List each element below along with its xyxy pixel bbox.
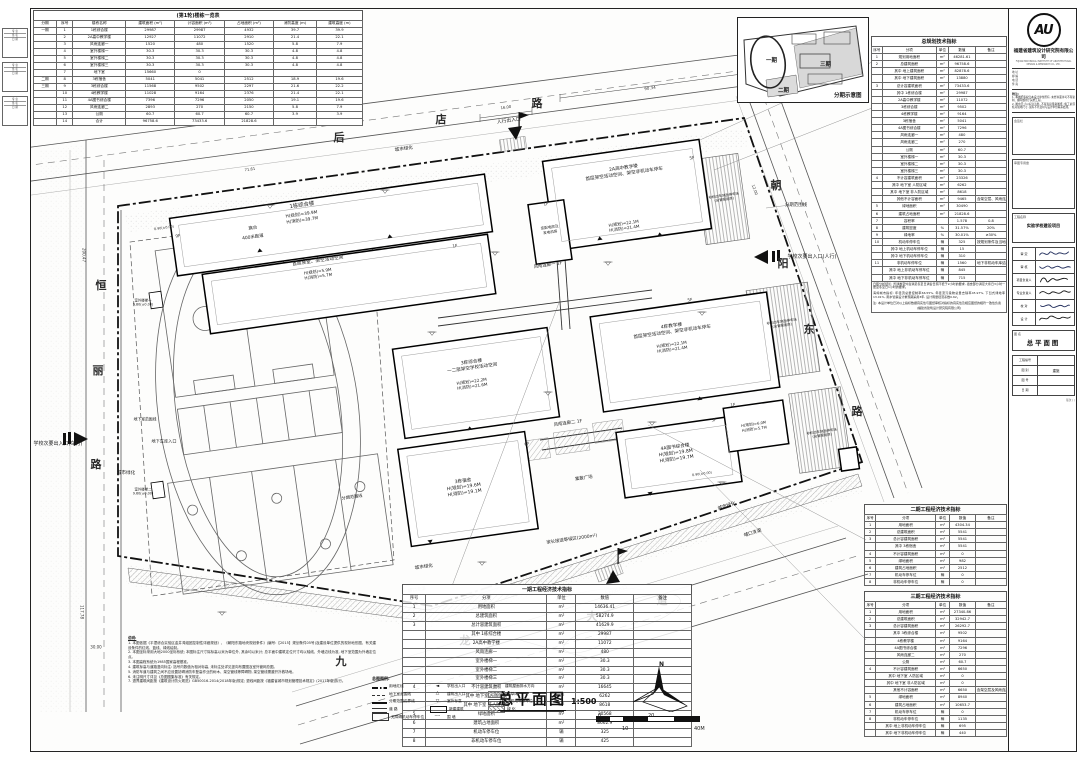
table-row: 14合计96758.673433.621828.6: [34, 118, 363, 125]
legend-item: △建筑出入口: [430, 691, 484, 699]
table-row: 4不计容建筑面积m²23326: [872, 174, 1007, 181]
table-header-row: 序号分项单位数值备注: [865, 515, 1007, 522]
building-4: [590, 292, 780, 412]
sign-label: 校 对: [1013, 300, 1036, 312]
legend-item-label: 用地红线: [389, 684, 404, 689]
legend-symbol-icon: ▽: [430, 699, 445, 705]
table-row: 2总建筑面积m²58274.9: [403, 612, 692, 621]
legend-column: 用地红线地下室范围线分期范围边界线道 路无障碍机动车停车位: [372, 683, 426, 721]
figure-name-label: 图 名: [1014, 332, 1073, 336]
company-name-en: FUJIAN PROVINCIAL INSTITUTE OF ARCHITECT…: [1012, 61, 1075, 69]
legend-symbol-icon: [372, 687, 387, 689]
table-row: 其中 地下室 人防区域m²0: [865, 673, 1007, 680]
signature-handwriting: [1036, 248, 1074, 259]
table-row: 4栋教学楼m²9164: [872, 110, 1007, 117]
text-line: 传 真: [1012, 83, 1075, 87]
review-stamp-box: 审图专用章: [1012, 159, 1075, 209]
table-row: 其中 地下室 非人防区域m²8618: [872, 189, 1007, 196]
text-line: 1. 本图纸版权归本设计单位所有, 未经书面许可不得复制、翻印或用于其他工程。: [1012, 96, 1075, 103]
table-row: 104栋教学楼110289164237621.422.1: [34, 90, 363, 97]
figure-name-box: 图 名 总平面图: [1012, 330, 1075, 351]
table-row: 10机动车停车位辆325按规划条件及当地标准配建: [872, 238, 1007, 245]
table-row: 一期11栋综合楼2998729987493239.739.9: [34, 27, 363, 34]
binding-strip: 专 业签 名日 期 专 业签 名日 期 专 业签 名日 期: [0, 0, 30, 760]
company-address: 地 址邮 编电 话传 真: [1012, 71, 1075, 90]
table-row: 7机动车停车位辆325: [403, 729, 692, 738]
table-row: 2总建筑面积m²32942.7: [865, 616, 1007, 623]
data-table: 序号分项单位数值备注1规划用地面积m²46281.612总建筑面积m²96758…: [871, 46, 1007, 282]
table-title: 总规划技术指标: [871, 36, 1007, 46]
table-row: 室外楼梯三m²30.3: [872, 167, 1007, 174]
sign-label: 专业负责人: [1013, 287, 1036, 299]
signature-handwriting: [1036, 274, 1074, 285]
building-3: [392, 328, 559, 439]
table-row: 其中 地下非机动车停车位辆440: [865, 729, 1007, 736]
legend-item: 无障碍机动车停车位: [372, 713, 426, 721]
title-block-divider: [1008, 8, 1009, 752]
table-row: 11非机动车停车位辆1560地下非机动车库结合地下室设置: [872, 260, 1007, 267]
company-logo: AU: [1027, 13, 1061, 47]
table-row: 8非机动车停车位辆425: [403, 738, 692, 747]
drawing-title-text: 总平面图: [498, 688, 566, 711]
legend-symbol-icon: ╌╌: [430, 714, 445, 720]
legend-item-label: 围 墙: [447, 715, 456, 720]
table-header-row: 分期序号楼栋名称建筑面积 (m²)计容面积 (m²)占地面积 (m²)消防高度 …: [34, 21, 363, 28]
table-row: 公厕m²60.7: [865, 658, 1007, 665]
table-row: 4不计容建筑面积m²6650: [865, 665, 1007, 672]
table-row: 其中 1栋综合楼m²29987: [403, 630, 692, 639]
building-4a: [616, 416, 742, 498]
scale-10: 10: [622, 726, 628, 733]
inset-phase3-label: 三期: [820, 62, 831, 69]
north-arrow: N: [626, 656, 692, 716]
table-row: 2总建筑面积m²96758.6: [872, 61, 1007, 68]
table-row: 12风雨连廊二289327021505.87.9: [34, 104, 363, 111]
table-row: 其中 地下机动车停车位辆310: [872, 253, 1007, 260]
table-row: 公厕m²60.7: [872, 146, 1007, 153]
project-name-label: 工程名称: [1014, 215, 1073, 219]
legend-title: 总图图例:: [372, 676, 542, 682]
signature-handwriting: [1036, 287, 1074, 298]
table-row: 其中 地下室 非人防区域m²0: [865, 680, 1007, 687]
legend-symbol-icon: [430, 706, 447, 713]
text-line: 2. 图中尺寸以标注为准, 不得直接量取图纸; 施工前须核对现场尺寸, 如有不符…: [1012, 103, 1075, 110]
signoff-grid: 专 业签 名日 期: [2, 62, 28, 92]
building-wc: [723, 400, 789, 452]
table-row: 三期93栋综合楼115689502229721.622.2: [34, 83, 363, 90]
inset-phase2-label: 二期: [778, 88, 789, 95]
sign-label: 审 定: [1013, 248, 1036, 260]
text-line: 2. 本图坐标采用大地2000坐标系统; 本图标注尺寸除标高以米为单位外, 其余…: [128, 650, 376, 660]
legend-item: 用地红线: [372, 683, 426, 691]
table-row: 其中 地下室 人防区域m²6262: [872, 182, 1007, 189]
sheet-field-label: 工程编号: [1013, 356, 1038, 365]
table-title: 一期工程经济技术指标: [402, 584, 692, 594]
legend-item: 分期范围边界线: [372, 698, 426, 706]
table-row: 8非机动车停车位辆1135: [865, 715, 1007, 722]
table-row: 5绿地面积m²8940: [865, 694, 1007, 701]
table-row: 6室外楼梯三30.330.330.34.84.8: [34, 62, 363, 69]
table-row: 其中 地上非机动车停车位辆845: [872, 267, 1007, 274]
scale-20: 20: [648, 713, 654, 720]
table-row: 3总计容建筑面积m²73433.6: [872, 82, 1007, 89]
project-name-value: 实验学校建设项目: [1014, 223, 1073, 229]
table-footnote: (福建省建筑设计研究院有限公司): [871, 306, 1007, 313]
figure-name-value: 总平面图: [1014, 338, 1073, 347]
drawing-sheet: { "tl_table":{ "title":"(第1轮)楼栋一览表", "he…: [0, 0, 1080, 760]
sheet-field-label: 图 别: [1013, 366, 1038, 375]
sheet-field-label: 图 号: [1013, 376, 1038, 385]
inset-caption: 分期示意图: [834, 93, 862, 100]
table-row: 1用地面积m²27340.86: [865, 609, 1007, 616]
table-row: 6建筑占地面积m²21828.6: [872, 210, 1007, 217]
legend-item: ▽室外标高: [430, 698, 484, 706]
signature-rows: 审 定 审 核 项目负责人 专业负责人 校 对 设 计: [1012, 247, 1075, 326]
table-row: 其他不计容面积m²9465含架空层、风雨连廊等: [872, 196, 1007, 203]
table-row: 3风雨连廊一152048015205.87.9: [34, 41, 363, 48]
signature-handwriting: [1036, 313, 1074, 324]
table-row: 1规划用地面积m²46281.61: [872, 54, 1007, 61]
table-row: 1用地面积m²14636.41: [403, 603, 692, 612]
project-name-box: 工程名称 实验学校建设项目: [1012, 213, 1075, 243]
table-row: 13公厕60.760.760.73.93.9: [34, 111, 363, 118]
table-footnote: 日照分析结论: 普通教室外窗满足冬至日满窗日照不低于2小时的要求, 宿舍部分满足…: [871, 282, 1007, 292]
table-footnote: 海绵城市指标: 年径流总量控制率66.55%, 年径流污染物总量去除率45.97…: [871, 291, 1007, 301]
table-row: 3总计容建筑面积m²5541: [865, 536, 1007, 543]
table-row: 5绿地面积m²982: [865, 557, 1007, 564]
table-row: 风雨连廊二m²270: [872, 139, 1007, 146]
table-row: 8非机动车停车位辆0: [865, 578, 1007, 585]
scale-0: 0: [598, 713, 601, 720]
legend-symbol-icon: [372, 713, 389, 720]
data-table: 分期序号楼栋名称建筑面积 (m²)计容面积 (m²)占地面积 (m²)消防高度 …: [33, 20, 363, 126]
table-title: 二期工程经济技术指标: [864, 504, 1007, 514]
table-row: 风雨连廊一m²480: [872, 132, 1007, 139]
green-strip-west: [40, 144, 84, 712]
table-row: 其中 地下建筑面积m²13880: [872, 75, 1007, 82]
legend-item-label: 无障碍机动车停车位: [391, 715, 424, 720]
table-row: 7机动车停车位辆0: [865, 571, 1007, 578]
table-row: 7地下室156600: [34, 69, 363, 76]
table-row: 室外楼梯一m²30.3: [872, 153, 1007, 160]
phasing-inset-drawing: [738, 18, 866, 100]
sign-label: 设 计: [1013, 313, 1036, 325]
legend-symbol-icon: [372, 695, 387, 696]
signoff-grid: 专 业签 名日 期: [2, 28, 28, 58]
table-row: 其中 地上建筑面积m²82878.6: [872, 68, 1007, 75]
table-header-row: 序号分项单位数值备注: [403, 595, 692, 604]
table-row: 7容积率1.5780.8: [872, 217, 1007, 224]
company-name: 福建省建筑设计研究院有限公司: [1012, 49, 1075, 60]
legend-symbol-icon: △: [430, 691, 445, 697]
building-equip: [528, 200, 572, 264]
sign-label: 项目负责人: [1013, 274, 1036, 286]
sheet-info-rows: 工程编号 图 别建施 图 号 日 期: [1012, 355, 1075, 396]
legend-item: 新建建筑: [430, 706, 484, 714]
table-row: 114A图书综合楼73967296205019.119.6: [34, 97, 363, 104]
legend-item-label: 室外标高: [447, 699, 462, 704]
table-header-row: 序号分项单位数值备注: [872, 47, 1007, 54]
legend-column: ◄学校出入口△建筑出入口▽室外标高新建建筑╌╌围 墙: [430, 683, 484, 721]
legend-item-label: 学校出入口: [447, 684, 465, 689]
table-row: 其中 地上非机动车停车位辆695: [865, 722, 1007, 729]
table-row: 3总计容建筑面积m²41629.9: [403, 621, 692, 630]
building-list-table: (第1轮)楼栋一览表分期序号楼栋名称建筑面积 (m²)计容面积 (m²)占地面积…: [33, 10, 363, 126]
table-row: 2A高中教学楼m²11072: [403, 639, 692, 648]
scale-40: 40M: [694, 726, 705, 733]
table-row: 其他不计容面积m²6650含架空层及风雨连廊、4A屋顶构架: [865, 687, 1007, 694]
table-row: 其中 3栋宿舍m²5541: [865, 543, 1007, 550]
table-row: 4不计容建筑面积m²0: [865, 550, 1007, 557]
table-row: 7机动车停车位辆0: [865, 708, 1007, 715]
drawing-title: 总平面图 1:500: [498, 688, 596, 711]
overall-indicators-table: 总规划技术指标序号分项单位数值备注1规划用地面积m²46281.612总建筑面积…: [871, 36, 1007, 313]
outdoor-stair-2: [151, 481, 165, 499]
sheet-version: 版次 ( ): [1012, 398, 1075, 402]
table-row: 风雨连廊二m²270: [865, 651, 1007, 658]
table-row: 3栋宿舍m²5041: [872, 118, 1007, 125]
table-row: 9绿地率%30.01%≥30%: [872, 231, 1007, 238]
legend-item: ╌╌围 墙: [430, 713, 484, 721]
table-row: 其中 地上机动车停车位辆15: [872, 246, 1007, 253]
scale-bar: 0 20 10 40M: [596, 710, 700, 728]
gatehouse: [839, 447, 860, 471]
table-row: 5室外楼梯二30.330.330.34.84.8: [34, 55, 363, 62]
legend-item-label: 地下室范围线: [389, 692, 411, 697]
data-table: 序号分项单位数值备注1用地面积m²27340.862总建筑面积m²32942.7…: [864, 601, 1007, 737]
sheet-field-label: 日 期: [1013, 386, 1038, 395]
table-row: 4A图书综合楼m²7296: [872, 125, 1007, 132]
table-title: 三期工程经济技术指标: [864, 591, 1007, 601]
inset-phase1-label: 一期: [766, 58, 777, 65]
legend-item: 道 路: [372, 706, 426, 714]
data-table: 序号分项单位数值备注1用地面积m²4304.342总建筑面积m²55413总计容…: [864, 514, 1007, 586]
north-label: N: [659, 661, 664, 669]
legend-item-label: 新建建筑: [449, 707, 464, 712]
table-row: 其中 地下非机动车停车位辆715: [872, 274, 1007, 281]
legend-symbol-icon: [372, 708, 387, 713]
signature-handwriting: [1036, 300, 1074, 311]
legend-item: 地下室范围线: [372, 691, 426, 699]
table-row: 3栋综合楼m²9502: [872, 103, 1007, 110]
table-row: 6建筑占地面积m²10653.7: [865, 701, 1007, 708]
table-row: 5绿地面积m²30490: [872, 203, 1007, 210]
legend-item-label: 分期范围边界线: [389, 699, 415, 704]
legend-item-label: 建筑出入口: [447, 692, 465, 697]
table-row: 其中 1栋综合楼m²29987: [872, 89, 1007, 96]
table-row: 1用地面积m²4304.34: [865, 522, 1007, 529]
table-row: 3总计容建筑面积m²26292.7: [865, 623, 1007, 630]
table-row: 4栋教学楼m²9164: [865, 637, 1007, 644]
drawing-scale: 1:500: [571, 697, 596, 706]
table-row: 22A高中教学楼1292711072291021.422.1: [34, 34, 363, 41]
table-row: 2A高中教学楼m²11072: [872, 96, 1007, 103]
table-row: 其中 3栋综合楼m²9502: [865, 630, 1007, 637]
sheet-field-value: 建施: [1038, 368, 1074, 373]
phase2-indicators-table: 二期工程经济技术指标序号分项单位数值备注1用地面积m²4304.342总建筑面积…: [864, 504, 1007, 586]
table-row: 室外楼梯二m²30.3: [872, 160, 1007, 167]
building-dorm-3: [398, 432, 538, 547]
text-line: 7. 退界建筑间距按《建筑设计防火规范》GB50016-2014(2018年版)…: [128, 679, 376, 684]
phasing-inset: 一期 三期 二期 分期示意图: [737, 17, 869, 103]
table-row: 2总建筑面积m²5541: [865, 529, 1007, 536]
signature-handwriting: [1036, 261, 1074, 272]
table-row: 4A图书综合楼m²7296: [865, 644, 1007, 651]
signoff-box: 会签栏: [1012, 117, 1075, 155]
legend-symbol-icon: ◄: [430, 684, 445, 690]
table-row: 6建筑占地面积m²2512: [865, 564, 1007, 571]
phase3-indicators-table: 三期工程经济技术指标序号分项单位数值备注1用地面积m²27340.862总建筑面…: [864, 591, 1007, 737]
signoff-grid: 专 业签 名日 期: [2, 96, 28, 126]
legend-item-label: 道 路: [389, 707, 398, 712]
table-title: (第1轮)楼栋一览表: [33, 10, 363, 20]
outdoor-stair-1: [149, 291, 163, 309]
general-notes: 说明:1. 本图依据《平潭综合实验区金井湾组团控制性详细规划》、《朝阳东路地块规…: [128, 636, 376, 684]
legend-symbol-icon: [372, 702, 387, 704]
table-row: 二期83栋宿舍50415041251218.919.6: [34, 76, 363, 83]
legend-item: ◄学校出入口: [430, 683, 484, 691]
table-row: 8建筑密度%31.57%20%: [872, 224, 1007, 231]
sign-label: 审 核: [1013, 261, 1036, 273]
title-block-notes: 附注: 1. 本图纸版权归本设计单位所有, 未经书面许可不得复制、翻印或用于其他…: [1012, 90, 1075, 113]
table-header-row: 序号分项单位数值备注: [865, 602, 1007, 609]
table-row: 4室外楼梯一30.330.330.34.84.8: [34, 48, 363, 55]
title-block: AU 福建省建筑设计研究院有限公司 FUJIAN PROVINCIAL INST…: [1009, 8, 1078, 752]
